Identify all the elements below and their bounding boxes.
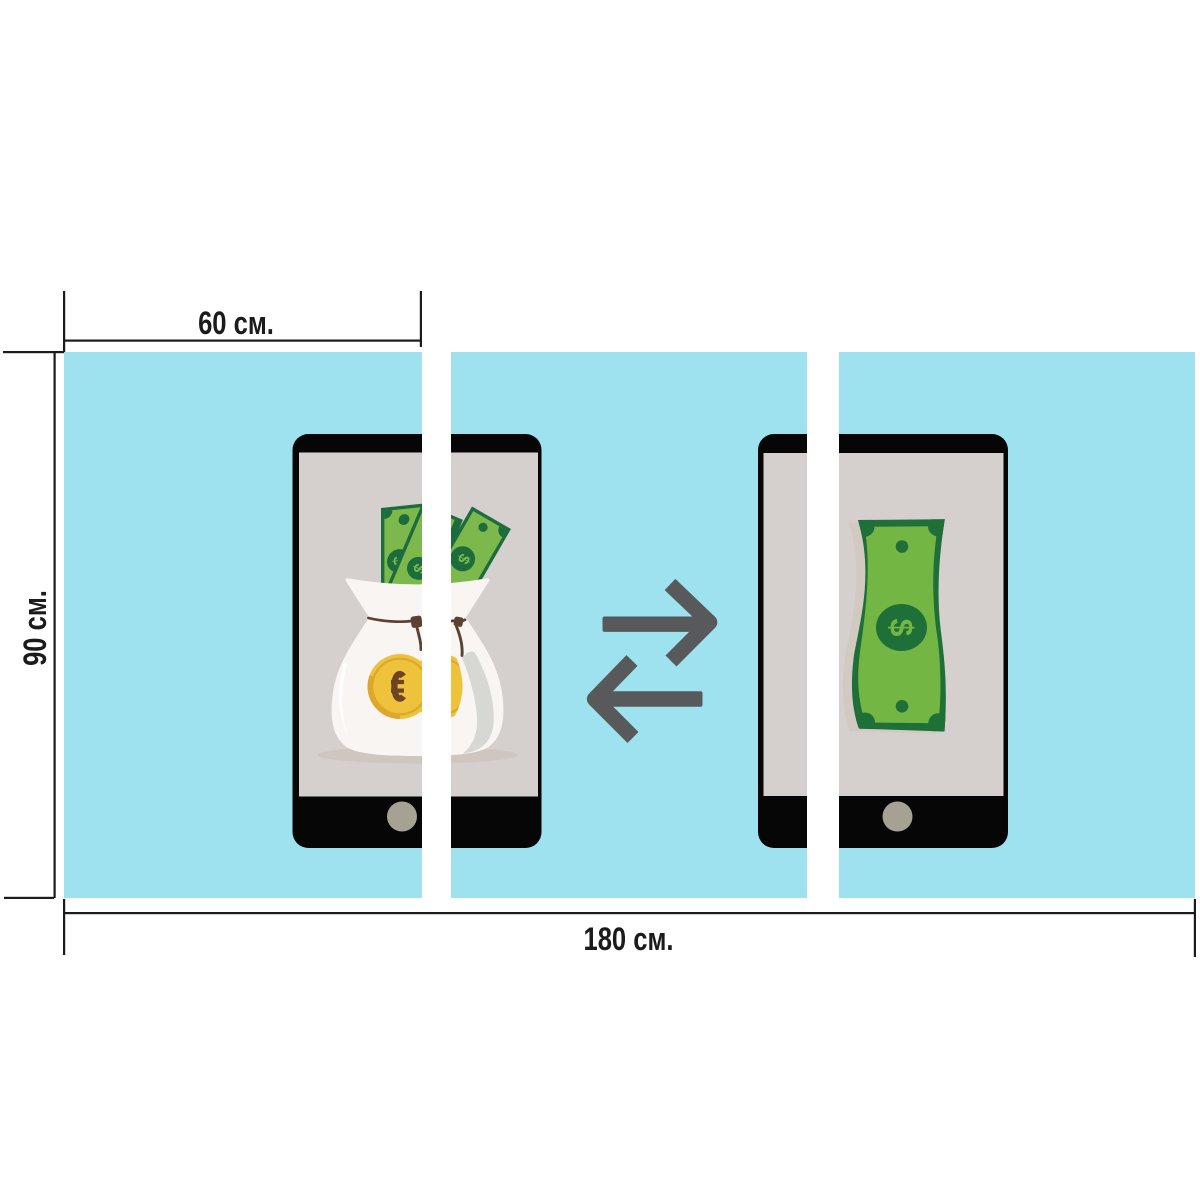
svg-text:$: $ xyxy=(884,619,920,637)
svg-text:180 см.: 180 см. xyxy=(583,922,673,957)
svg-text:90 см.: 90 см. xyxy=(18,590,53,666)
svg-text:60 см.: 60 см. xyxy=(198,306,274,341)
